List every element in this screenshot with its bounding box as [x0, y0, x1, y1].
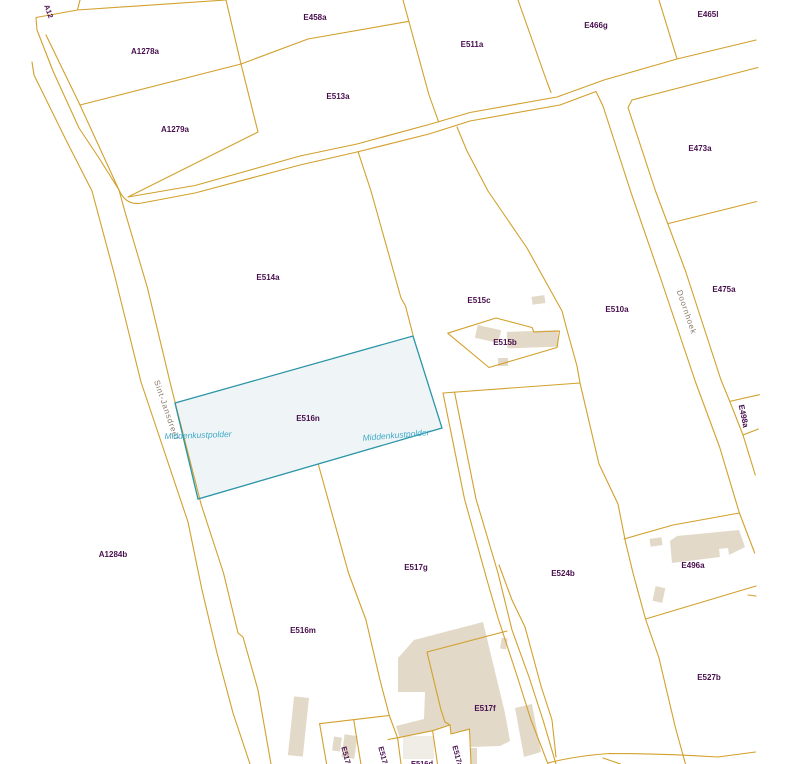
svg-text:E511a: E511a: [461, 40, 484, 49]
svg-text:A1278a: A1278a: [131, 47, 160, 56]
svg-text:E465l: E465l: [698, 10, 719, 19]
svg-text:A1279a: A1279a: [161, 125, 190, 134]
svg-text:E473a: E473a: [688, 144, 712, 153]
svg-text:E510a: E510a: [605, 305, 629, 314]
svg-text:E458a: E458a: [303, 13, 327, 22]
svg-text:E517g: E517g: [404, 563, 428, 572]
svg-text:E527b: E527b: [697, 673, 721, 682]
svg-text:E517f: E517f: [474, 704, 496, 713]
svg-text:E515b: E515b: [493, 338, 517, 347]
svg-text:E516m: E516m: [290, 626, 316, 635]
svg-text:E496a: E496a: [681, 561, 705, 570]
svg-text:E513a: E513a: [326, 92, 350, 101]
svg-text:E524b: E524b: [551, 569, 575, 578]
svg-text:E515c: E515c: [467, 296, 491, 305]
svg-text:A1284b: A1284b: [99, 550, 128, 559]
svg-text:E516n: E516n: [296, 414, 320, 423]
svg-text:E516d: E516d: [411, 759, 434, 764]
svg-text:E466g: E466g: [584, 21, 608, 30]
svg-text:E514a: E514a: [256, 273, 280, 282]
svg-text:E475a: E475a: [712, 285, 736, 294]
